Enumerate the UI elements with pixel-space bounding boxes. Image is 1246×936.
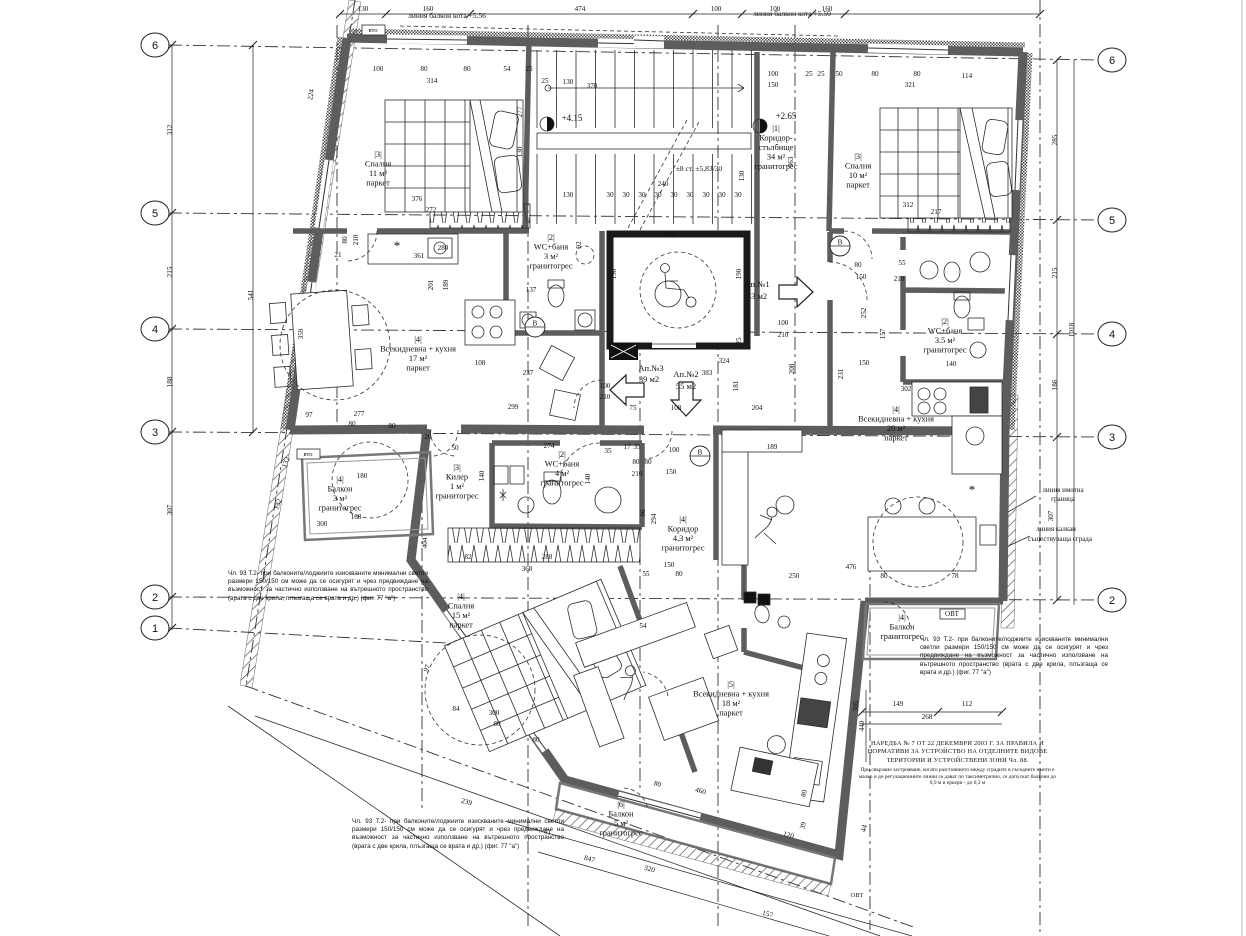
grid-bubble-label: 2 <box>152 592 158 604</box>
dimension-label: 80 <box>388 422 396 430</box>
dimension-label: 39 <box>798 821 808 830</box>
dimension-label: 280 <box>438 244 449 252</box>
dimension-label: 86 <box>639 509 647 517</box>
room-label: 3 м² <box>544 252 559 261</box>
room-label: WC+баня <box>928 327 963 336</box>
room-label: 10 м² <box>849 171 868 180</box>
grid-bubble-label: 1 <box>152 623 158 635</box>
dimension-label: 80 <box>632 458 640 466</box>
dimension-label: 250 <box>789 572 800 580</box>
room-label: стълбище <box>759 143 794 152</box>
dimension-label: 307 <box>166 504 174 515</box>
room-label: гранитогрес <box>435 492 479 501</box>
annotation-text: ОВТ <box>945 610 960 618</box>
dimension-label: 190 <box>735 268 743 279</box>
dimension-label: 130 <box>358 5 369 13</box>
dimension-label: 108 <box>475 359 486 367</box>
dimension-label: 277 <box>354 410 365 418</box>
room-label: 4 м² <box>555 469 570 478</box>
dimension-label: 55 <box>898 259 906 267</box>
room-label: |3| <box>374 150 382 159</box>
room-label: |4| <box>336 475 344 484</box>
dimension-label: 168 <box>351 513 362 521</box>
annotation-text: линия балкон кота +5.50 <box>753 9 831 18</box>
window <box>387 39 467 40</box>
annotation-text: ±8 ст. ±5,83/30 <box>676 164 723 173</box>
dimension-label: 80 <box>348 420 356 428</box>
grid-bubble-label: 2 <box>1109 595 1115 607</box>
annotation-text: линия имотна <box>1042 486 1084 494</box>
annotation-text: съществуваща сграда <box>1028 535 1093 543</box>
dimension-label: 150 <box>768 81 779 89</box>
dimension-label: 25 <box>817 70 825 78</box>
dimension-label: 208 <box>788 363 796 374</box>
dimension-label: 80 <box>675 570 683 578</box>
room-label: 15 м² <box>452 611 471 620</box>
dimension-label: 237 <box>523 369 534 377</box>
dimension-label: 130 <box>563 191 574 199</box>
room-label: паркет <box>449 621 473 630</box>
room-label: 4.3 м² <box>673 534 694 543</box>
dimension-label: 80 <box>493 720 501 728</box>
dimension-label: 376 <box>412 195 423 203</box>
dimension-label: 100 <box>669 446 680 454</box>
dimension-label: 239 <box>460 797 473 808</box>
dimension-label: 210 <box>894 275 905 283</box>
room-label: |2| <box>558 450 566 459</box>
window <box>634 40 664 41</box>
dimension-label: 80 <box>653 779 662 789</box>
room-label: 3.5 м² <box>935 336 956 345</box>
annotation-text: Ап.№2 <box>673 369 698 379</box>
dimension-label: 160 <box>423 5 434 13</box>
dimension-label: 314 <box>427 77 438 85</box>
dimension-label: 210 <box>778 331 789 339</box>
dimension-label: 54 <box>639 622 647 630</box>
dimension-label: 82 <box>464 553 472 561</box>
dimension-label: 25 <box>735 337 743 345</box>
dimension-label: 80 <box>871 70 879 78</box>
dimension-label: 137 <box>526 286 537 294</box>
annotation-text: +4.15 <box>562 113 583 123</box>
grid-bubble-label: 6 <box>1109 55 1115 67</box>
dimension-label: 78 <box>951 572 959 580</box>
room-label: 20 м² <box>887 424 906 433</box>
dimension-label: 140 <box>584 473 592 484</box>
dimension-label: 25 <box>541 77 549 85</box>
dimension-label: 80 <box>532 736 540 744</box>
dimension-label: 274 <box>544 442 555 450</box>
room-label: Спалня <box>448 602 475 611</box>
grid-bubble-label: 3 <box>1109 432 1115 444</box>
dimension-label: 25 <box>805 70 813 78</box>
dimension-label: 383 <box>702 369 713 377</box>
dimension-label: 100 <box>711 5 722 13</box>
dimension-label: 359 <box>297 328 305 339</box>
dimension-label: 80 <box>341 236 349 244</box>
room-label: гранитогрес <box>880 632 924 641</box>
dimension-label: 217 <box>931 208 942 216</box>
dimension-label: 44 <box>859 824 869 833</box>
dimension-label: 231 <box>837 368 845 379</box>
dimension-label: 157 <box>761 909 774 920</box>
elevator-shaft <box>610 234 747 348</box>
window <box>868 48 948 50</box>
room-label: паркет <box>406 364 430 373</box>
staircase <box>537 50 752 230</box>
dimension-label: 302 <box>901 385 912 393</box>
grid-bubble-label: 4 <box>1109 329 1115 341</box>
annotation-text: вто <box>304 451 313 458</box>
room-label: гранитогрес <box>923 346 967 355</box>
dimension-label: 25 <box>525 65 533 73</box>
dimension-label: 300 <box>489 709 500 717</box>
dimension-label: 312 <box>166 124 174 135</box>
dimension-label: 188 <box>166 376 174 387</box>
room-label: гранитогрес <box>529 262 573 271</box>
dimension-label: 288 <box>542 553 553 561</box>
valve-badge-letter: В <box>838 239 843 247</box>
room-label: паркет <box>366 179 390 188</box>
dimension-label: 30 <box>606 191 614 199</box>
room-label: 17 м² <box>409 354 428 363</box>
room-label: Коридор- <box>759 134 793 143</box>
naredba-title: НАРЕДБА № 7 ОТ 22 ДЕКЕМВРИ 2003 Г. ЗА ПР… <box>855 740 1060 765</box>
dimension-label: 476 <box>846 563 857 571</box>
dimension-label: 363 <box>787 156 795 167</box>
dimension-label: 50 <box>451 444 459 452</box>
dimension-label: 204 <box>752 404 763 412</box>
dimension-label: 224 <box>306 88 316 100</box>
dimension-label: 312 <box>903 201 914 209</box>
room-label: Спалня <box>845 162 872 171</box>
dimension-label: 541 <box>247 289 255 300</box>
dimension-label: 210 <box>632 470 643 478</box>
floor-plan-drawing: 65432165432 |3|Спалня11 м²паркет|3|Спалн… <box>0 0 1246 936</box>
dimension-label: 97 <box>305 411 313 419</box>
room-label: |4| <box>892 405 900 414</box>
dimension-label: 108 <box>671 404 682 412</box>
dimension-label: 150 <box>859 359 870 367</box>
dimension-label: 30 <box>686 191 694 199</box>
dimension-label: 324 <box>719 357 730 365</box>
dimension-label: 35 <box>604 447 612 455</box>
dimension-label: 460 <box>694 786 707 797</box>
naredba-body: При свързано застрояване, когато разстоя… <box>855 767 1060 787</box>
room-label: |4| <box>414 335 422 344</box>
annotation-text: вто <box>369 27 378 34</box>
dimension-label: 30 <box>734 191 742 199</box>
dimension-label: 80 <box>854 261 862 269</box>
room-label: гранитогрес <box>540 479 584 488</box>
room-label: |6| <box>617 800 625 809</box>
dimension-label: 35 <box>633 443 641 451</box>
dimension-label: 50 <box>835 70 843 78</box>
dimension-label: 30 <box>670 191 678 199</box>
room-label: паркет <box>846 181 870 190</box>
bed-2 <box>880 108 1012 218</box>
regulation-note-1: Чл. 93 Т.2- при балконите/лоджиите изиск… <box>228 570 428 603</box>
dimension-label: 215 <box>1051 267 1059 278</box>
dimension-label: 20 <box>424 433 432 441</box>
dimension-label: 30 <box>702 191 710 199</box>
dimension-label: 80 <box>913 70 921 78</box>
dimension-label: 368 <box>522 565 533 573</box>
room-label: паркет <box>884 434 908 443</box>
room-label: |4| <box>679 515 687 524</box>
bed-1 <box>385 100 523 212</box>
dimension-label: 140 <box>946 360 957 368</box>
dimension-label: 100 <box>768 70 779 78</box>
naredba-note: НАРЕДБА № 7 ОТ 22 ДЕКЕМВРИ 2003 Г. ЗА ПР… <box>855 740 1060 787</box>
annotation-text: 43 м2 <box>747 291 767 301</box>
dimension-label: 160 <box>822 5 833 13</box>
dimension-label: 21 <box>334 251 342 259</box>
room-label: гранитогрес <box>318 504 362 513</box>
room-label: 5 м² <box>614 819 629 828</box>
grid-bubble-label: 5 <box>152 208 158 220</box>
vent-shaft <box>609 343 638 360</box>
dimension-label: 30 <box>718 191 726 199</box>
dimension-label: 80 <box>644 458 652 466</box>
room-label: Всекидневна + кухня <box>693 690 769 699</box>
dimension-label: 294 <box>650 513 658 524</box>
dimension-label: 17 <box>623 443 631 451</box>
dimension-label: 277 <box>516 106 524 117</box>
dimension-label: 112 <box>962 700 973 708</box>
room-label: WC+баня <box>545 460 580 469</box>
dimension-label: 114 <box>962 72 973 80</box>
dimension-label: 252 <box>860 307 868 318</box>
dimension-label: 320 <box>643 864 656 875</box>
dimension-label: 272 <box>426 206 437 214</box>
dimension-label: 240 <box>658 180 669 188</box>
dimension-label: 54 <box>503 65 511 73</box>
dimension-label: 100 <box>770 5 781 13</box>
dimension-label: 299 <box>508 403 519 411</box>
dimension-label: 190 <box>610 268 618 279</box>
dimension-label: 210 <box>352 234 360 245</box>
dimension-label: 370 <box>587 82 598 90</box>
room-label: |4| <box>898 613 906 622</box>
room-label: |1| <box>772 124 780 133</box>
dimension-label: 100 <box>600 382 611 390</box>
dimension-label: 300 <box>317 520 328 528</box>
dimension-label: 30 <box>654 191 662 199</box>
dimension-label: 201 <box>427 279 435 290</box>
room-label: 18 м² <box>722 699 741 708</box>
room-label: Всекидневна + кухня <box>858 415 934 424</box>
arrow-ap1 <box>779 277 813 307</box>
annotation-text: 39 м2 <box>639 374 659 384</box>
dimension-label: 130 <box>516 146 524 157</box>
dimension-label: 84 <box>452 705 460 713</box>
dimension-label: 30 <box>622 191 630 199</box>
regulation-note-3: Чл. 93 Т.2- при балконите/лоджиите изиск… <box>920 636 1108 677</box>
room-label: Коридор <box>668 525 699 534</box>
dimension-label: 305 <box>852 700 860 711</box>
room-label: |2| <box>941 317 949 326</box>
dimension-label: 474 <box>575 5 586 13</box>
dimension-label: 157 <box>879 328 887 339</box>
dimension-label: 189 <box>442 279 450 290</box>
room-label: |3| <box>453 463 461 472</box>
annotation-text: +2.65 <box>776 111 797 121</box>
dimension-label: 180 <box>357 472 368 480</box>
dimension-label: 149 <box>893 700 904 708</box>
room-label: паркет <box>719 709 743 718</box>
room-label: |2| <box>547 233 555 242</box>
grid-bubble-label: 4 <box>152 324 158 336</box>
annotation-text: 55 м2 <box>676 381 696 391</box>
annotation-text: линия балкон кота +5.56 <box>408 11 486 20</box>
dimension-label: 130 <box>738 170 746 181</box>
dimension-label: 307 <box>1047 510 1055 521</box>
dimension-label: 404 <box>421 537 429 548</box>
annotation-text: Ап.№3 <box>638 363 663 373</box>
dimension-label: 100 <box>373 65 384 73</box>
annotation-text: граница <box>1051 495 1076 503</box>
dimension-label: 215 <box>166 266 174 277</box>
room-label: Балкон <box>327 485 353 494</box>
dimension-label: 210 <box>600 393 611 401</box>
room-label: 34 м² <box>767 153 786 162</box>
grid-bubble-label: 6 <box>152 40 158 52</box>
room-label: 1 м² <box>450 482 465 491</box>
room-label: Всекидневна + кухня <box>380 345 456 354</box>
room-label: |3| <box>854 152 862 161</box>
annotation-text: ОВТ <box>851 892 864 899</box>
bath-fixtures-4 <box>744 592 790 628</box>
dimension-label: 150 <box>664 561 675 569</box>
room-label: |5| <box>727 680 735 689</box>
dimension-label: 186 <box>1051 379 1059 390</box>
dimension-label: 150 <box>856 273 867 281</box>
dining-table-left <box>269 289 373 392</box>
valve-badge-letter: В <box>698 449 703 457</box>
room-label: гранитогрес <box>661 544 705 553</box>
dimension-label: 100 <box>778 319 789 327</box>
window <box>1015 120 1018 190</box>
room-label: Балкон <box>608 810 634 819</box>
dimension-label: 1018 <box>1068 322 1076 337</box>
annotation-text: * <box>394 238 401 253</box>
dimension-label: 30 <box>638 191 646 199</box>
grid-bubble-label: 5 <box>1109 215 1115 227</box>
dimension-label: 55 <box>642 570 650 578</box>
dimension-label: 321 <box>905 81 916 89</box>
dimension-label: 189 <box>767 443 778 451</box>
dimension-label: 181 <box>732 380 740 391</box>
grid-bubble-label: 3 <box>152 427 158 439</box>
annotation-text: * <box>969 482 976 497</box>
dimension-label: 847 <box>583 854 596 865</box>
dimension-label: 268 <box>922 713 933 721</box>
regulation-note-2: Чл. 93 Т.2- при балконите/лоджиите изиск… <box>352 818 564 851</box>
room-label: Спалня <box>365 160 392 169</box>
dimension-label: 361 <box>414 252 425 260</box>
floor-plan-canvas: 65432165432 |3|Спалня11 м²паркет|3|Спалн… <box>0 0 1246 936</box>
room-label: Килер <box>446 473 468 482</box>
annotation-text: Ап.№1 <box>744 279 769 289</box>
room-label: 11 м² <box>369 169 387 178</box>
room-label: 3 м² <box>333 494 348 503</box>
dimension-label: 130 <box>563 78 574 86</box>
room-label: Балкон <box>889 623 915 632</box>
window <box>1008 255 1011 320</box>
dimension-label: 75 <box>629 404 637 412</box>
room-label: гранитогрес <box>599 829 643 838</box>
dimension-label: 285 <box>1051 134 1059 145</box>
dimension-label: 80 <box>880 572 888 580</box>
annotation-text: линия калкан <box>1036 525 1076 533</box>
room-label: WC+баня <box>534 243 569 252</box>
dimension-label: 150 <box>666 468 677 476</box>
dimension-label: 233 <box>666 231 677 239</box>
dimension-label: 80 <box>420 65 428 73</box>
dimension-label: 440 <box>858 720 866 731</box>
dimension-label: 80 <box>463 65 471 73</box>
valve-badge-letter: В <box>533 320 538 328</box>
room-label: |4| <box>457 592 465 601</box>
dimension-label: 92 <box>575 241 583 249</box>
dimension-label: 140 <box>478 470 486 481</box>
